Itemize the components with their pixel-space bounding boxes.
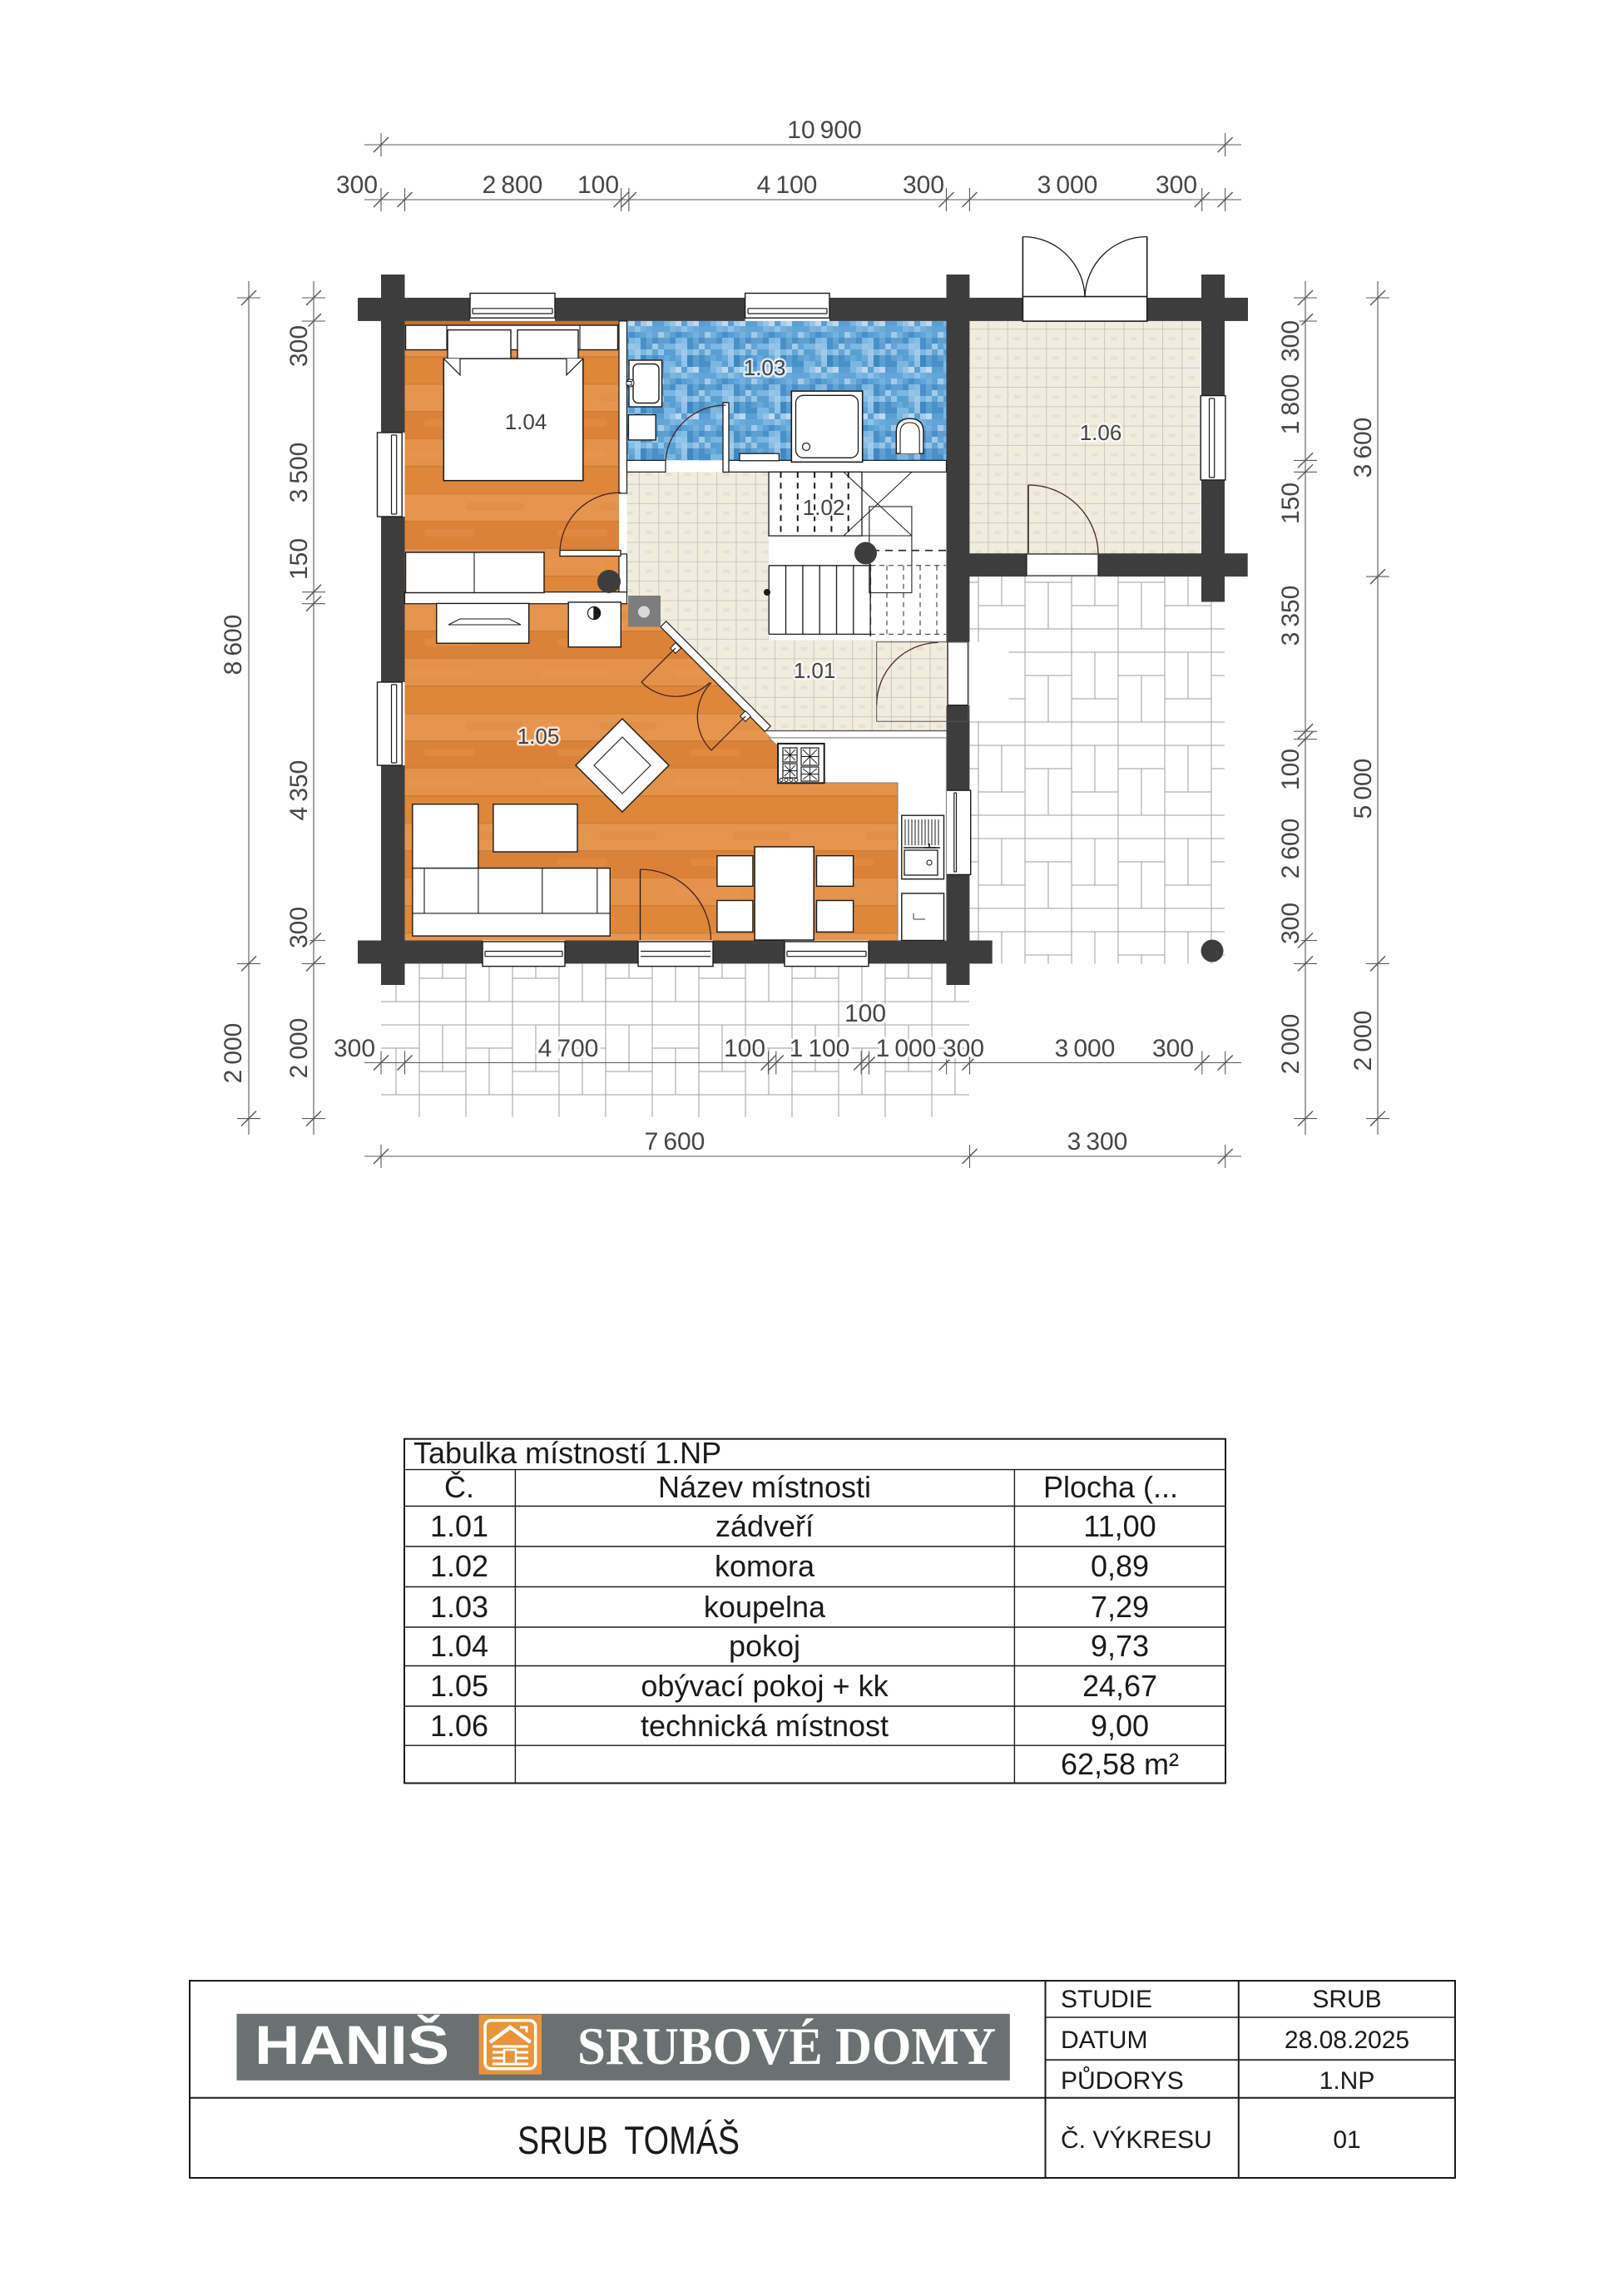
svg-text:2 000: 2 000: [220, 1023, 247, 1084]
svg-text:300: 300: [1156, 171, 1197, 199]
svg-text:24,67: 24,67: [1082, 1669, 1157, 1703]
svg-text:3 500: 3 500: [285, 443, 313, 503]
svg-text:0,89: 0,89: [1091, 1549, 1149, 1583]
svg-text:pokoj: pokoj: [729, 1629, 800, 1663]
svg-text:2 600: 2 600: [1277, 819, 1305, 879]
svg-text:Plocha (...: Plocha (...: [1043, 1470, 1178, 1504]
svg-text:10 900: 10 900: [787, 116, 861, 144]
svg-text:1.05: 1.05: [517, 724, 560, 749]
svg-text:1 800: 1 800: [1277, 374, 1305, 435]
svg-text:4 100: 4 100: [757, 171, 818, 199]
svg-text:1.06: 1.06: [1080, 420, 1122, 445]
svg-text:100: 100: [577, 171, 619, 199]
svg-text:1.05: 1.05: [430, 1669, 488, 1703]
svg-text:Č. VÝKRESU: Č. VÝKRESU: [1061, 2125, 1212, 2154]
svg-text:SRUB: SRUB: [1312, 1986, 1381, 2013]
svg-text:5 000: 5 000: [1349, 759, 1377, 819]
svg-text:zádveří: zádveří: [715, 1509, 814, 1543]
svg-text:62,58 m²: 62,58 m²: [1061, 1747, 1179, 1781]
svg-text:SRUBOVÉ DOMY: SRUBOVÉ DOMY: [577, 2016, 996, 2076]
svg-text:2 000: 2 000: [1277, 1014, 1305, 1075]
svg-text:Tabulka místností 1.NP: Tabulka místností 1.NP: [413, 1436, 721, 1470]
svg-text:Název místnosti: Název místnosti: [658, 1470, 871, 1504]
svg-text:300: 300: [336, 171, 378, 199]
svg-text:9,73: 9,73: [1091, 1629, 1149, 1663]
svg-text:technická místnost: technická místnost: [641, 1709, 889, 1743]
svg-text:1.02: 1.02: [803, 495, 845, 520]
svg-text:7 600: 7 600: [645, 1128, 706, 1155]
svg-text:100: 100: [844, 1000, 886, 1027]
svg-text:PŮDORYS: PŮDORYS: [1061, 2066, 1184, 2095]
svg-text:150: 150: [1277, 482, 1305, 524]
svg-text:3 000: 3 000: [1055, 1035, 1116, 1062]
svg-text:1.NP: 1.NP: [1319, 2067, 1375, 2095]
svg-text:1.04: 1.04: [430, 1629, 488, 1663]
svg-text:300: 300: [334, 1035, 375, 1062]
svg-text:DATUM: DATUM: [1061, 2026, 1147, 2054]
svg-text:obývací pokoj + kk: obývací pokoj + kk: [641, 1669, 889, 1703]
svg-text:300: 300: [1152, 1035, 1194, 1062]
svg-text:1.03: 1.03: [744, 355, 786, 380]
svg-text:STUDIE: STUDIE: [1061, 1986, 1152, 2013]
svg-text:01: 01: [1333, 2126, 1360, 2154]
svg-text:300: 300: [285, 325, 313, 367]
svg-text:4 700: 4 700: [538, 1035, 599, 1062]
svg-text:28.08.2025: 28.08.2025: [1285, 2026, 1409, 2054]
svg-text:Č.: Č.: [444, 1470, 474, 1504]
svg-text:8 600: 8 600: [220, 615, 247, 675]
svg-text:koupelna: koupelna: [704, 1590, 826, 1624]
svg-text:1.04: 1.04: [505, 409, 547, 434]
svg-text:300: 300: [1277, 320, 1305, 362]
svg-text:1.06: 1.06: [430, 1709, 488, 1743]
svg-text:100: 100: [1277, 749, 1305, 790]
svg-text:1.02: 1.02: [430, 1549, 488, 1583]
svg-text:komora: komora: [715, 1549, 815, 1583]
svg-text:2 000: 2 000: [285, 1018, 313, 1079]
svg-text:3 350: 3 350: [1277, 586, 1305, 646]
svg-text:9,00: 9,00: [1091, 1709, 1149, 1743]
svg-text:2 000: 2 000: [1349, 1011, 1377, 1071]
svg-text:SRUB TOMÁŠ: SRUB TOMÁŠ: [517, 2118, 740, 2162]
svg-text:11,00: 11,00: [1083, 1509, 1156, 1543]
svg-text:3 600: 3 600: [1349, 418, 1377, 478]
svg-text:7,29: 7,29: [1091, 1590, 1149, 1624]
svg-text:HANIŠ: HANIŠ: [255, 2014, 449, 2076]
svg-text:1.01: 1.01: [794, 658, 836, 683]
svg-text:3 300: 3 300: [1067, 1128, 1128, 1155]
svg-text:150: 150: [285, 538, 313, 580]
svg-text:1.03: 1.03: [430, 1590, 488, 1624]
svg-text:1 000: 1 000: [876, 1035, 937, 1062]
svg-text:300: 300: [1277, 903, 1305, 944]
svg-text:2 800: 2 800: [483, 171, 543, 199]
svg-text:1 100: 1 100: [790, 1035, 850, 1062]
svg-text:300: 300: [943, 1035, 984, 1062]
svg-text:3 000: 3 000: [1037, 171, 1098, 199]
svg-text:1.01: 1.01: [430, 1509, 488, 1543]
svg-text:4 350: 4 350: [285, 760, 313, 821]
svg-text:100: 100: [724, 1035, 765, 1062]
svg-text:300: 300: [285, 907, 313, 948]
svg-text:300: 300: [903, 171, 944, 199]
